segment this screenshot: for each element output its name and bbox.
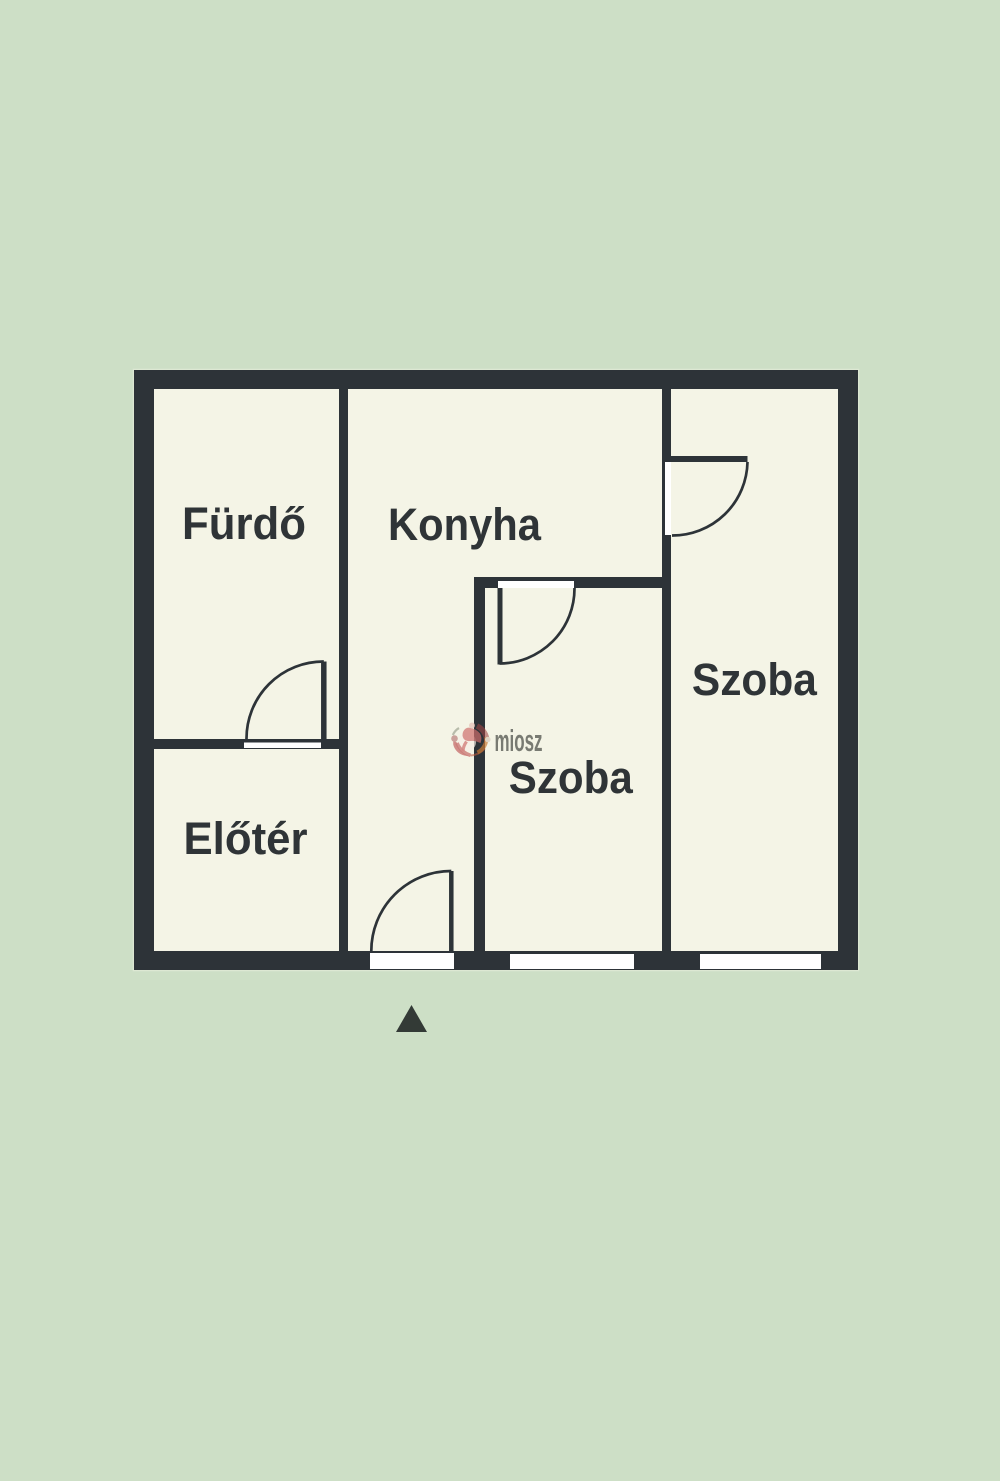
- svg-text:miosz: miosz: [495, 723, 543, 758]
- svg-text:Előtér: Előtér: [184, 813, 308, 864]
- svg-text:Konyha: Konyha: [388, 499, 542, 550]
- svg-text:Szoba: Szoba: [692, 654, 818, 705]
- svg-text:Szoba: Szoba: [509, 752, 634, 803]
- svg-text:Fürdő: Fürdő: [182, 498, 306, 549]
